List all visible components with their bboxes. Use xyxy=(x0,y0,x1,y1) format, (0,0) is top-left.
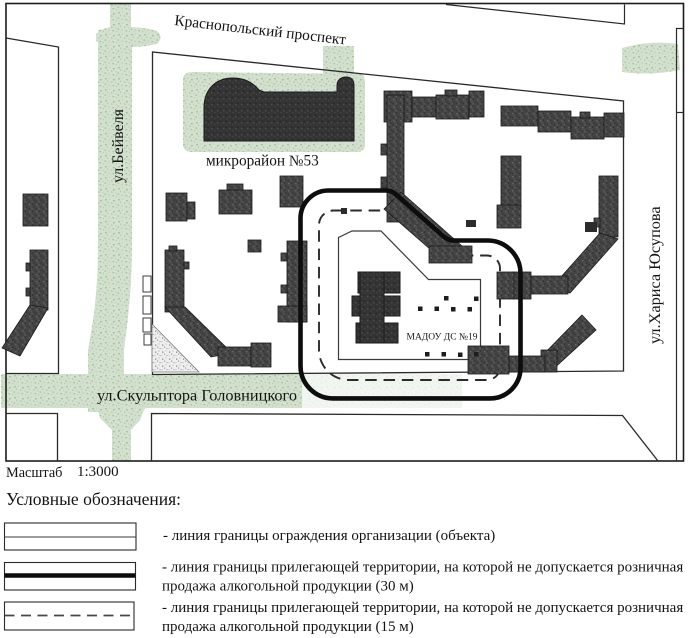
svg-text:микрорайон №53: микрорайон №53 xyxy=(206,153,319,170)
svg-text:ул.Скульптора Головницкого: ул.Скульптора Головницкого xyxy=(97,386,297,405)
svg-text:МАДОУ ДС №19: МАДОУ ДС №19 xyxy=(407,333,478,343)
svg-text:Условные обозначения:: Условные обозначения: xyxy=(6,489,181,509)
svg-text:продажа алкогольной продукции: продажа алкогольной продукции (30 м) xyxy=(162,579,414,595)
svg-text:- линия границы прилегающей те: - линия границы прилегающей территории, … xyxy=(162,600,683,616)
svg-text:Масштаб: Масштаб xyxy=(6,465,62,481)
svg-text:1:3000: 1:3000 xyxy=(77,464,119,480)
svg-text:- линия границы ограждения орг: - линия границы ограждения организации (… xyxy=(163,528,495,544)
svg-text:- линия границы прилегающей те: - линия границы прилегающей территории, … xyxy=(162,560,683,576)
svg-text:ул.Бейвеля: ул.Бейвеля xyxy=(110,108,127,183)
svg-text:ул.Хариса Юсупова: ул.Хариса Юсупова xyxy=(645,206,664,344)
svg-text:продажа алкогольной продукции: продажа алкогольной продукции (15 м) xyxy=(162,619,414,635)
